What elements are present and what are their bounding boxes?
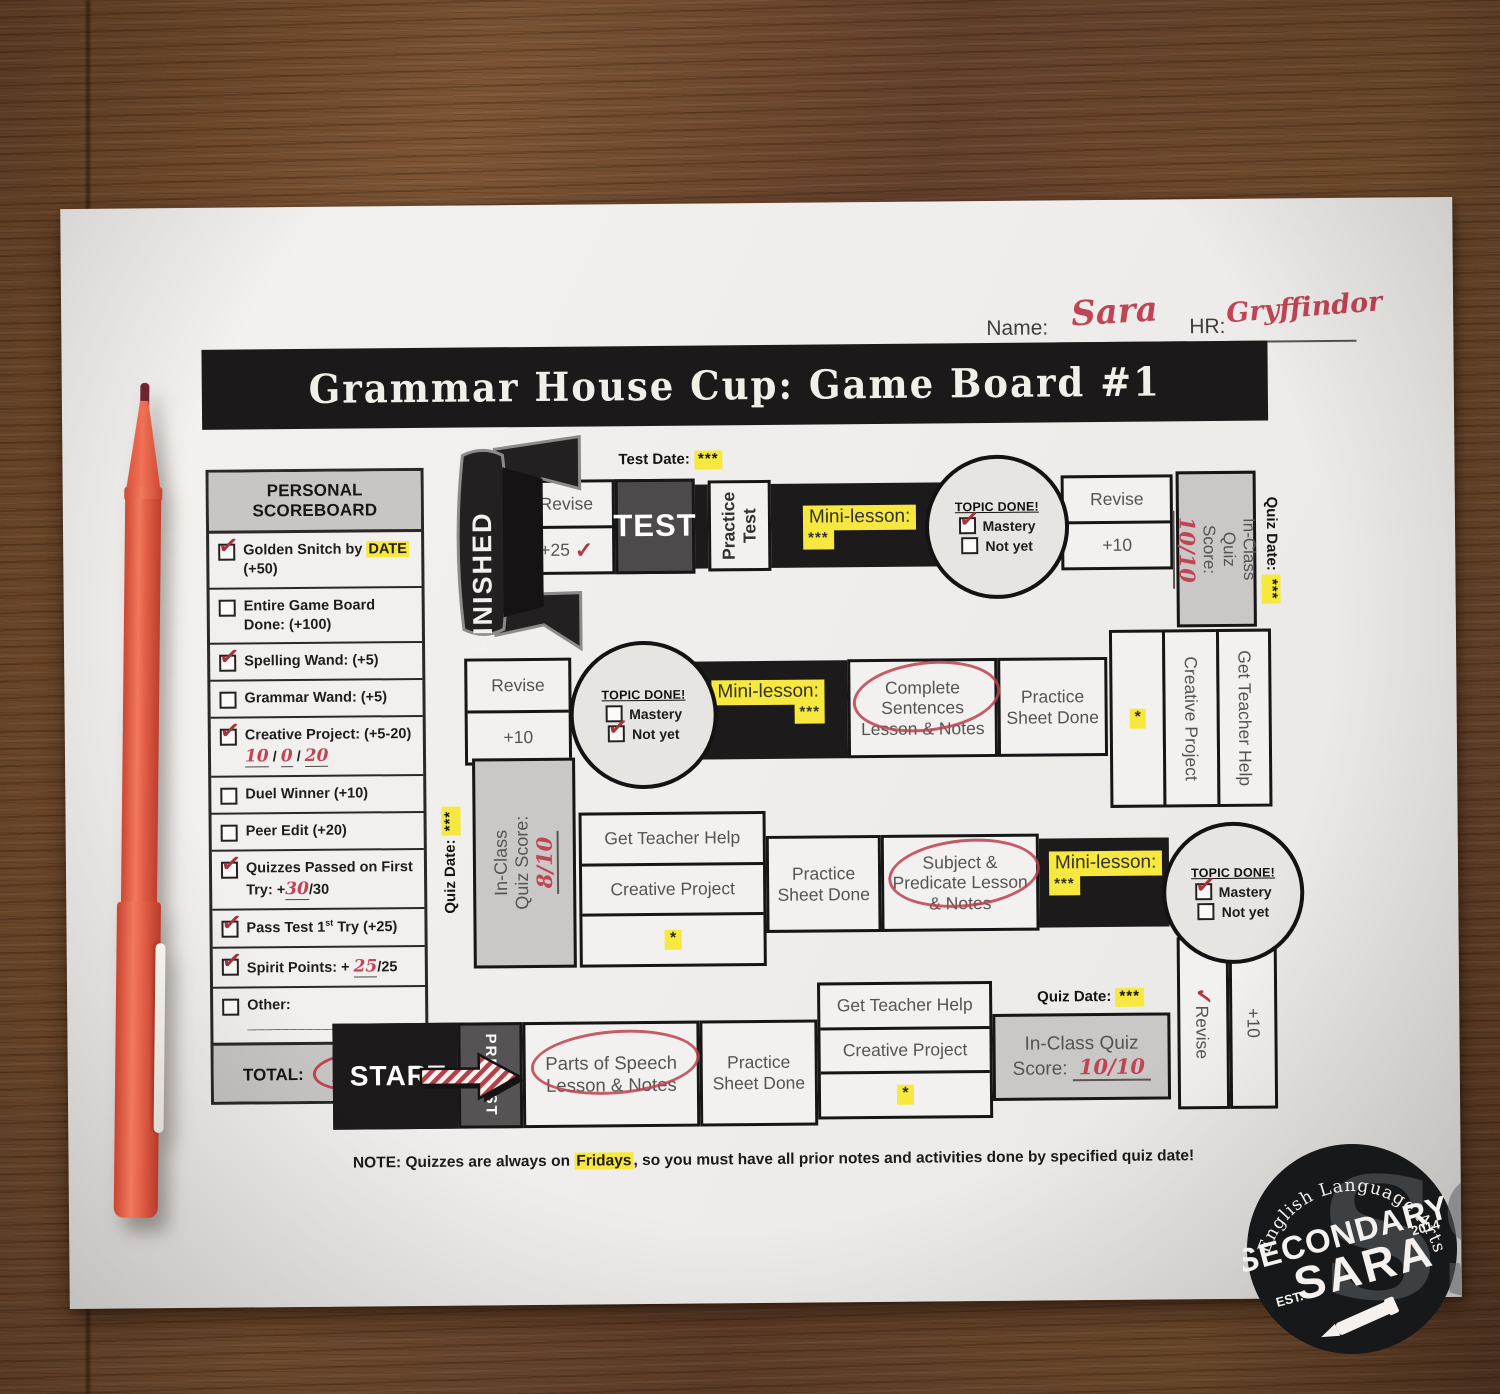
- scoreboard-item: Creative Project: (+5-20) 10 / 0 / 20: [211, 717, 424, 778]
- not-yet-checkbox: [608, 725, 625, 742]
- revise-checkmark: ✓: [1191, 987, 1216, 1006]
- not-yet-checkbox: [961, 537, 978, 554]
- scoreboard-item: Entire Game Board Done: (+100): [210, 588, 422, 646]
- page-title: Grammar House Cup: Game Board #1: [308, 358, 1161, 413]
- scoreboard-item: Duel Winner (+10): [211, 776, 423, 815]
- scoreboard-item-label: Pass Test 1st Try (+25): [246, 917, 397, 938]
- unchecked-checkbox: [222, 999, 239, 1016]
- scoreboard-item-label: Spelling Wand: (+5): [244, 652, 379, 672]
- option-stack-middle: Get Teacher Help Creative Project *: [579, 811, 767, 968]
- cell-quiz-score-top-right: In-Class Quiz Score: 10/10: [1176, 471, 1257, 628]
- checked-checkbox: [219, 655, 236, 672]
- secondary-sara-logo: SS English Language Arts SECONDARY SARA …: [1243, 1140, 1461, 1358]
- scoreboard-item: Spelling Wand: (+5): [210, 643, 422, 682]
- creative-project-option: Creative Project: [582, 865, 763, 917]
- mastery-option: Mastery: [958, 517, 1035, 535]
- revise-label: Revise: [467, 661, 568, 714]
- scoreboard-item-label: Entire Game Board Done: (+100): [244, 596, 415, 635]
- scoreboard-item: Spirit Points: + 25/25: [213, 947, 425, 989]
- mini-lesson-row2-stars: ***: [794, 703, 825, 723]
- star-option: *: [582, 915, 763, 964]
- mastery-option: Mastery: [1195, 883, 1272, 901]
- quiz-score-bottom-handwritten: 10/10: [1073, 1054, 1151, 1082]
- cell-revise-plus10-row1: Revise +10: [1061, 474, 1174, 570]
- checked-checkbox: [222, 958, 239, 975]
- get-teacher-help-option: Get Teacher Help: [820, 984, 989, 1030]
- get-teacher-help-option: Get Teacher Help: [582, 814, 763, 866]
- pen-clip: [154, 943, 166, 1133]
- name-label: Name:: [986, 316, 1048, 341]
- hr-handwritten: Gryffindor: [1225, 286, 1383, 329]
- title-banner: Grammar House Cup: Game Board #1: [201, 341, 1268, 430]
- plus10-label: +10: [1064, 523, 1170, 567]
- checked-checkbox: [221, 921, 238, 938]
- checked-checkbox: [221, 862, 238, 879]
- footer-note: NOTE: Quizzes are always on Fridays, so …: [273, 1147, 1273, 1174]
- unchecked-checkbox: [221, 825, 238, 842]
- not-yet-option: Not yet: [608, 725, 680, 743]
- cell-practice-test: Practice Test: [708, 480, 772, 572]
- creative-project-option: Creative Project: [820, 1029, 989, 1075]
- cell-subject-predicate: Subject & Predicate Lesson & Notes: [881, 834, 1040, 932]
- finished-ribbon: FINISHED: [434, 426, 606, 657]
- test-date-stars: ***: [694, 450, 723, 469]
- cell-complete-sentences: Complete Sentences Lesson & Notes: [847, 658, 998, 758]
- topic-done-circle-top: TOPIC DONE! Mastery Not yet: [924, 454, 1069, 599]
- personal-scoreboard: PERSONAL SCOREBOARD Golden Snitch by DAT…: [206, 468, 430, 1105]
- not-yet-checkbox: [1198, 903, 1215, 920]
- scoreboard-item-label: Grammar Wand: (+5): [244, 689, 387, 709]
- not-yet-option: Not yet: [961, 537, 1033, 555]
- scoreboard-item-label: Peer Edit (+20): [246, 822, 347, 842]
- pen-cone: [126, 401, 161, 489]
- unchecked-checkbox: [219, 692, 236, 709]
- quiz-score-top-right-handwritten: 10/10: [1172, 510, 1200, 588]
- scoreboard-item: Peer Edit (+20): [212, 813, 424, 852]
- scoreboard-item: Pass Test 1st Try (+25): [212, 909, 424, 949]
- scoreboard-item-label: Spirit Points: + 25/25: [247, 955, 398, 978]
- test-date-label: Test Date: ***: [618, 450, 722, 468]
- mini-lesson-row1-stars: ***: [803, 529, 834, 549]
- finished-label: FINISHED: [467, 511, 498, 653]
- start-arrow-icon: [413, 1048, 533, 1105]
- plus10-label: +10: [468, 713, 569, 763]
- cell-star-column-right: *: [1109, 629, 1167, 807]
- cell-practice-sheet-row2: Practice Sheet Done: [997, 657, 1108, 757]
- scoreboard-item-label: Duel Winner (+10): [245, 785, 368, 805]
- checked-checkbox: [218, 544, 235, 561]
- cell-practice-sheet-row3: Practice Sheet Done: [766, 835, 882, 933]
- scoreboard-item-label: Creative Project: (+5-20) 10 / 0 / 20: [245, 725, 416, 767]
- name-handwritten: Sara: [1070, 289, 1159, 334]
- checked-checkbox: [220, 729, 237, 746]
- cell-revise-plus10-row2: Revise +10: [464, 658, 572, 766]
- cell-test: TEST: [615, 479, 696, 575]
- scoreboard-items: Golden Snitch by DATE (+50)Entire Game B…: [209, 532, 425, 1043]
- quiz-date-vertical-left: Quiz Date: ***: [427, 788, 472, 933]
- unchecked-checkbox: [220, 788, 237, 805]
- cell-get-teacher-help-column: Get Teacher Help: [1216, 629, 1273, 807]
- topic-done-circle-middle: TOPIC DONE! Mastery Not yet: [569, 640, 718, 789]
- hr-label: HR:: [1189, 315, 1225, 339]
- revise-label: Revise: [1064, 477, 1170, 524]
- red-pen: [93, 382, 212, 1228]
- mini-lesson-row3: Mini-lesson: ***: [1049, 851, 1163, 896]
- quiz-score-middle-left-handwritten: 8/10: [532, 831, 560, 895]
- mini-lesson-row1: Mini-lesson: ***: [803, 505, 917, 550]
- unchecked-checkbox: [219, 599, 236, 616]
- pen-barrel: [121, 499, 161, 904]
- mastery-checkbox: [958, 517, 975, 534]
- option-stack-bottom: Get Teacher Help Creative Project *: [817, 981, 993, 1120]
- cell-practice-sheet-bottom: Practice Sheet Done: [699, 1020, 818, 1127]
- mastery-checkbox: [1195, 883, 1212, 900]
- quiz-date-label-bottom: Quiz Date: ***: [1037, 988, 1144, 1006]
- mini-lesson-row3-stars: ***: [1049, 875, 1080, 895]
- scoreboard-item-label: Golden Snitch by DATE (+50): [243, 540, 414, 579]
- cell-parts-of-speech: Parts of Speech Lesson & Notes: [522, 1021, 700, 1129]
- scoreboard-item: Grammar Wand: (+5): [210, 680, 422, 719]
- cell-creative-project-column: Creative Project: [1162, 629, 1221, 807]
- total-label: TOTAL:: [243, 1065, 304, 1085]
- scoreboard-item: Golden Snitch by DATE (+50): [209, 532, 421, 590]
- scoreboard-item: Quizzes Passed on First Try: +30/30: [212, 850, 425, 911]
- scoreboard-title: PERSONAL SCOREBOARD: [209, 471, 422, 534]
- photo-canvas: { "header": { "name_label": "Name:", "na…: [0, 0, 1500, 1394]
- mini-lesson-row2: Mini-lesson: ***: [711, 679, 825, 724]
- topic-done-circle-bottom: TOPIC DONE! Mastery Not yet: [1162, 821, 1305, 964]
- cell-quiz-score-middle-left: In-Class Quiz Score: 8/10: [472, 758, 577, 969]
- not-yet-option: Not yet: [1198, 903, 1270, 921]
- star-option: *: [821, 1073, 990, 1116]
- scoreboard-item-label: Quizzes Passed on First Try: +30/30: [246, 858, 417, 900]
- cell-quiz-score-bottom: In-Class Quiz Score: 10/10: [992, 1012, 1171, 1101]
